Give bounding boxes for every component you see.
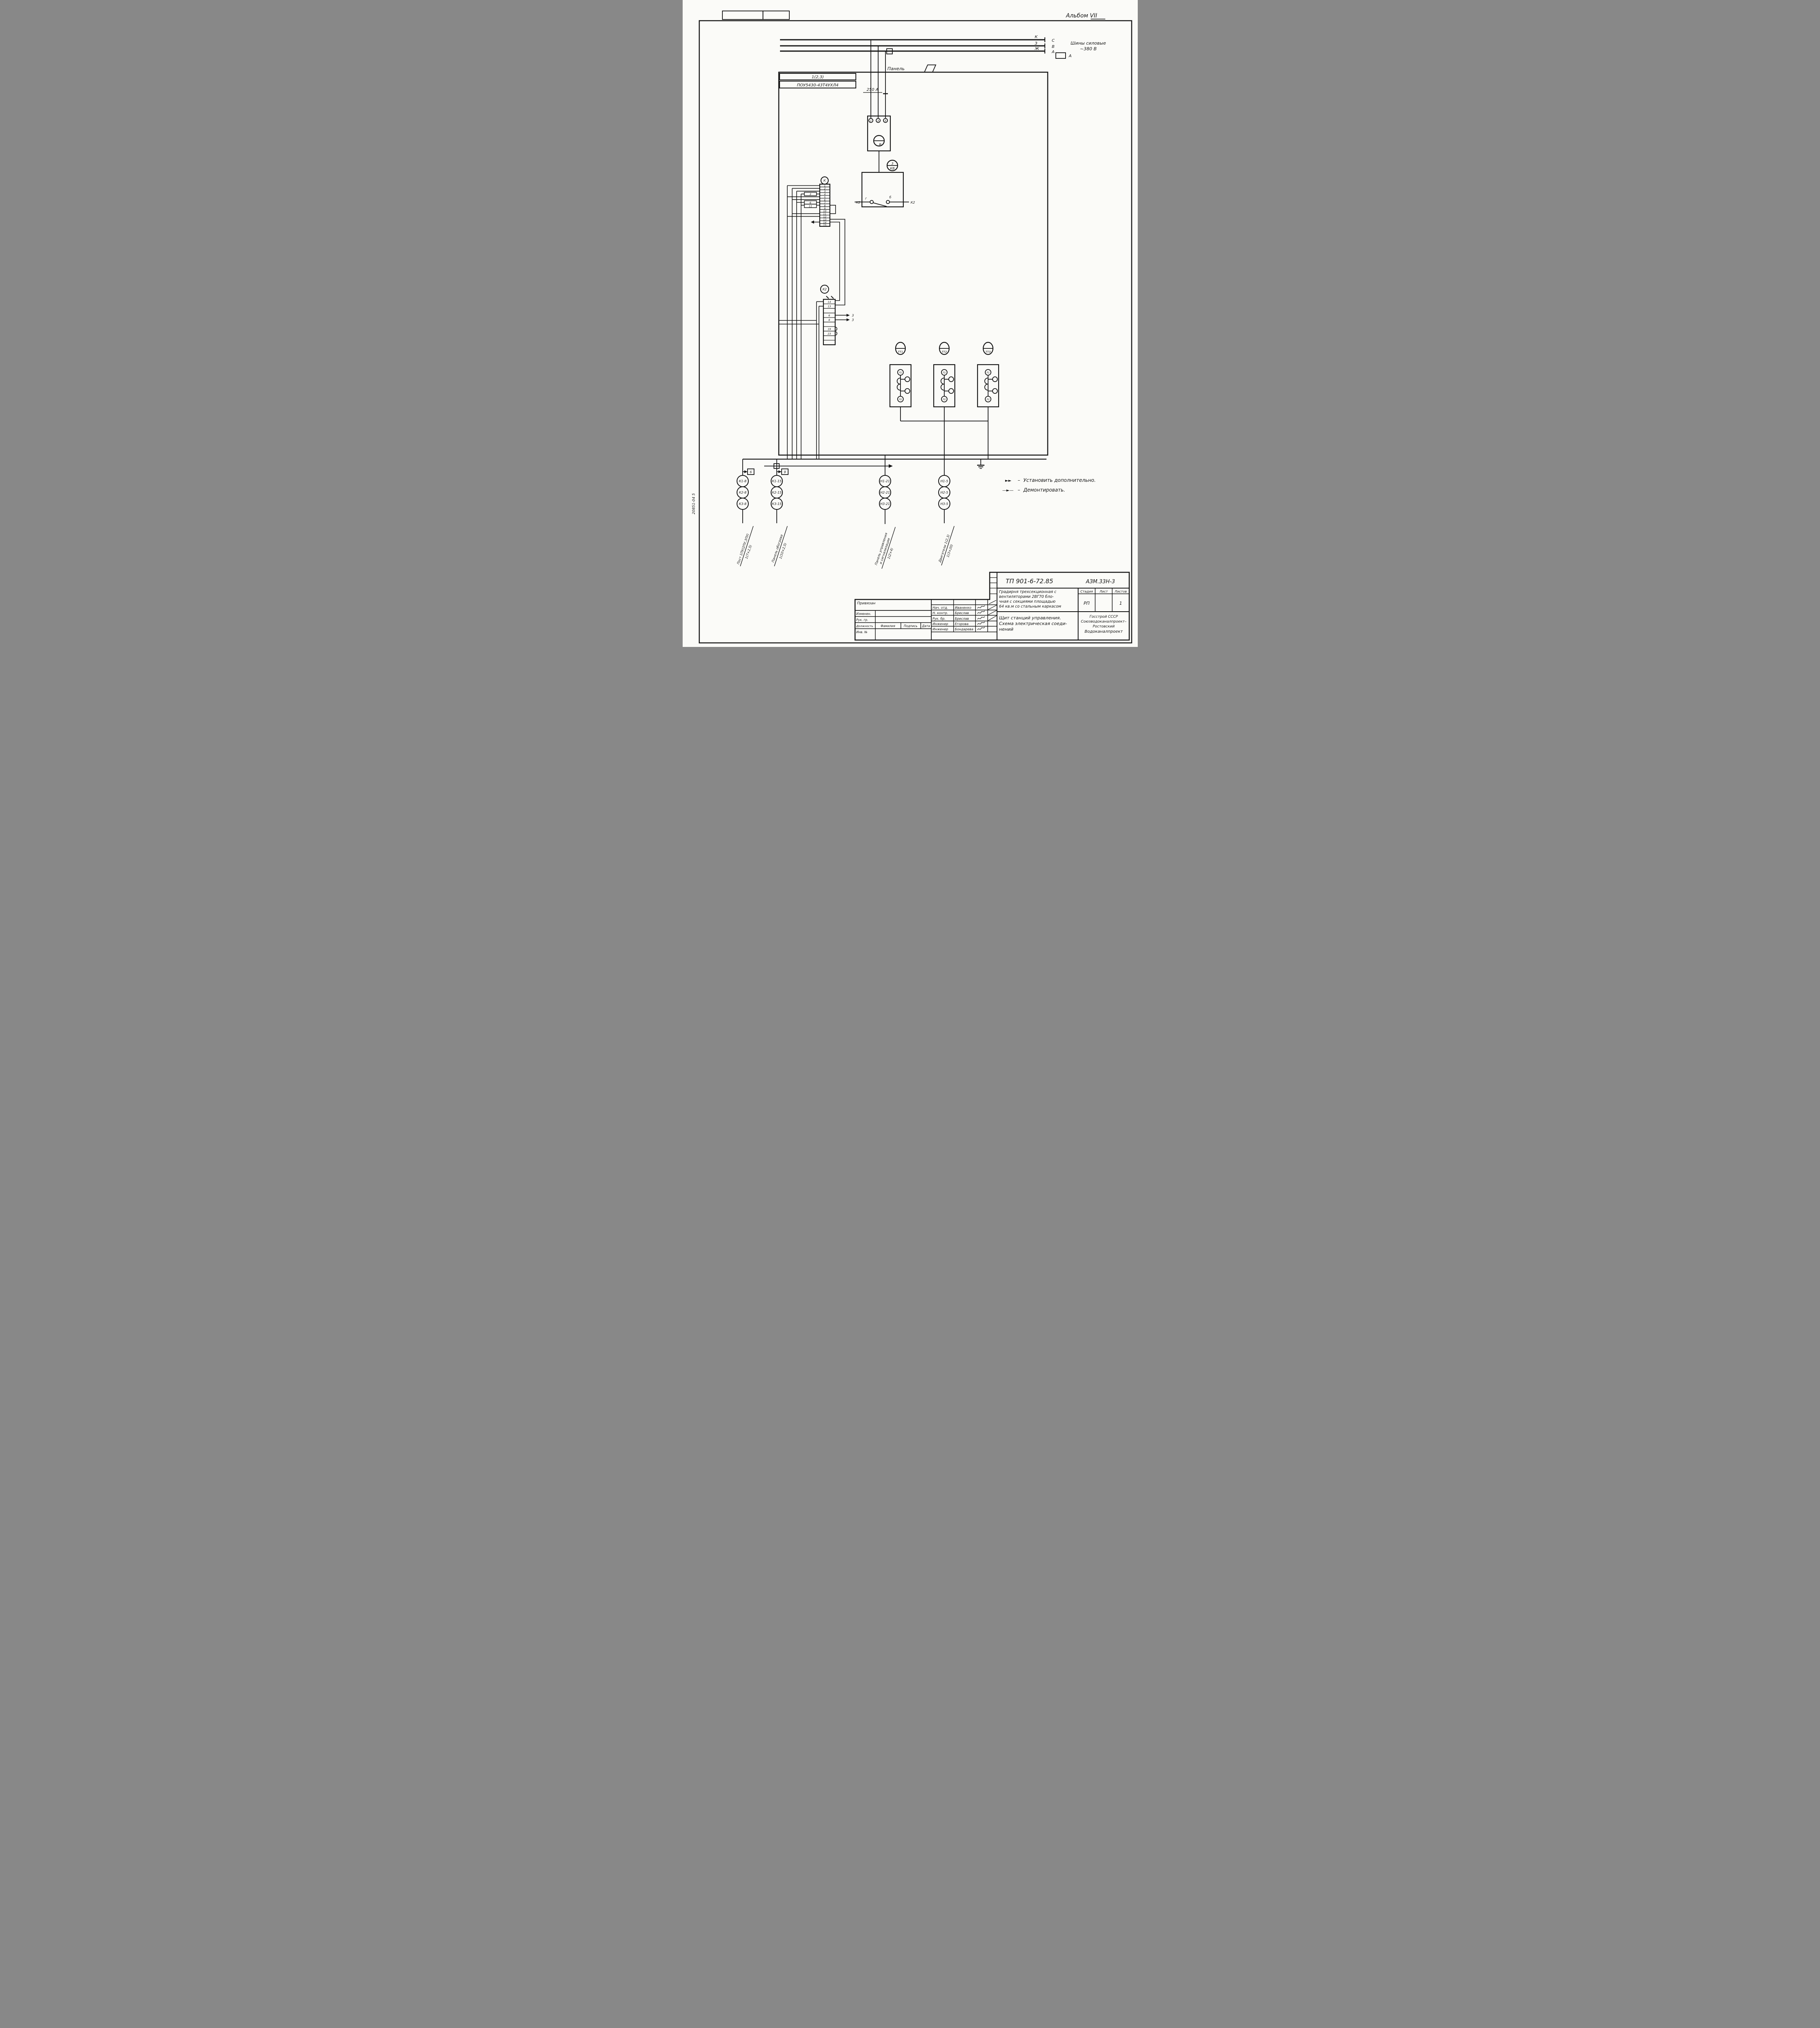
k2-cell: 13 bbox=[827, 305, 831, 308]
k-cell: 14 bbox=[823, 221, 826, 224]
project-line3: чная с секциями площадью bbox=[999, 599, 1055, 604]
k2-wire-label-2: 3 bbox=[852, 318, 854, 322]
project-line4: 64 кв.м со стальным каркасом bbox=[999, 604, 1061, 609]
bus-end-a: А bbox=[1051, 50, 1055, 54]
signer-name-1: Иваненко bbox=[955, 606, 971, 610]
col-d-c1: Н1-5 bbox=[940, 479, 948, 483]
bus-end-c: С bbox=[1052, 39, 1055, 43]
bottom-bus bbox=[743, 459, 1046, 466]
project-line1: Градирня трехсекционная с bbox=[999, 590, 1057, 594]
org-line1: Госстрой СССР bbox=[1089, 615, 1118, 619]
col-c-c1: Н1-21 bbox=[880, 479, 890, 483]
k-cell: 4 bbox=[824, 193, 825, 196]
tt-wiring bbox=[900, 407, 988, 459]
sheet-frame bbox=[699, 11, 1132, 643]
bus-end-b: В bbox=[1052, 45, 1055, 49]
signer-name-5: Бондарева bbox=[955, 627, 973, 631]
bus-phase-zh: Ж bbox=[1034, 47, 1040, 51]
k-cell: 5 bbox=[824, 196, 825, 199]
dest-label-d: Двигатели 1(2,3) 1(3×20) bbox=[937, 525, 959, 567]
header-stage: Стадия bbox=[1080, 590, 1093, 593]
col-d-c2: Н2-5 bbox=[940, 491, 948, 494]
panel-type: ПОУ5430-43Т4УХЛ4 bbox=[797, 83, 838, 88]
tt1-l1: Л1 bbox=[898, 372, 902, 374]
bus-phase-z: З bbox=[1035, 41, 1038, 46]
k-tag-6: 6 bbox=[809, 201, 811, 204]
k-cell: 8 bbox=[824, 204, 825, 207]
k-cell: 3 bbox=[824, 190, 825, 193]
signer-role-5: Инженер bbox=[933, 627, 948, 631]
k2-wire-label-1: 3 bbox=[852, 314, 854, 318]
drawing-title-line1: Щит станций управления. bbox=[999, 615, 1061, 621]
annotation: Привязан bbox=[857, 602, 875, 606]
bus-legend-label: А bbox=[1068, 54, 1072, 58]
signer-name-3: Бреслав bbox=[955, 617, 969, 621]
note1-symbol: ►► bbox=[1005, 479, 1012, 483]
header-sheet: Лист bbox=[1099, 590, 1108, 593]
k2-cell: 19 bbox=[827, 328, 831, 331]
panel-title: Панель bbox=[887, 66, 905, 71]
sheets-value: 1 bbox=[1119, 601, 1122, 606]
sheet-code: АЗМ.33Н-3 bbox=[1085, 579, 1115, 585]
panel-symbol bbox=[924, 65, 936, 72]
album-label: Альбом VII bbox=[1066, 13, 1097, 19]
tag-a: 6 bbox=[750, 470, 752, 474]
drawing-sheet: Альбом VII 20851-04 5 К З Ж С В А Шины с… bbox=[683, 0, 1138, 647]
bus-title-line2: ~380 В bbox=[1080, 46, 1096, 52]
k-block-title: К bbox=[823, 179, 826, 183]
tt1-label: ТТ1 bbox=[898, 350, 903, 354]
kv-contact-g: г bbox=[865, 197, 867, 200]
note1-text: Установить дополнительно. bbox=[1023, 477, 1096, 483]
hdr-date: Дата bbox=[922, 624, 930, 628]
signer-name-2: Бреслав bbox=[955, 611, 969, 615]
hdr-name: Фамилия bbox=[881, 624, 895, 628]
margin-inventory-number: 20851-04 5 bbox=[692, 493, 696, 514]
tt2-l2: Л2 bbox=[942, 399, 946, 401]
kv-contact bbox=[855, 200, 909, 206]
col-d-c3: Н3-5 bbox=[940, 502, 948, 506]
kv-name: КВ bbox=[890, 167, 894, 170]
org-line2: Союзводоканалпроект– bbox=[1081, 620, 1126, 624]
row-label-2: Рук. гр. bbox=[856, 618, 868, 622]
kv-left-label: К2 bbox=[856, 201, 860, 204]
row-label-1: Изменен. bbox=[856, 612, 871, 616]
wire-arrow-1 bbox=[847, 314, 850, 317]
col-a-c3: К3-8 bbox=[739, 502, 746, 506]
tt1-l2: Л2 bbox=[898, 399, 902, 401]
note2-text: Демонтировать. bbox=[1023, 487, 1065, 493]
signer-role-1: Нач. отд. bbox=[933, 606, 948, 610]
org-line3: Ростовский bbox=[1092, 625, 1114, 629]
k-cell: 2 bbox=[824, 187, 825, 190]
tt2-l1: Л1 bbox=[942, 372, 946, 374]
dest-label-b: Панель обогрева 1(10×2,5) bbox=[770, 525, 792, 568]
signer-role-4: Инженер bbox=[933, 622, 948, 626]
org-line4: Водоканалпроект bbox=[1084, 629, 1123, 634]
hdr-sign: Подпись bbox=[904, 624, 918, 628]
wire-arrow-2 bbox=[847, 318, 850, 321]
tag-b: 9 bbox=[784, 470, 786, 474]
stage-value: РП bbox=[1083, 601, 1089, 606]
hdr-role: Должность bbox=[856, 625, 873, 628]
dest-label-c: Панель управления и сигнализации 1(2×4) bbox=[874, 524, 900, 570]
k2-block-title: К2 bbox=[822, 288, 826, 291]
power-buses bbox=[780, 37, 1045, 54]
bus-phase-k: К bbox=[1035, 35, 1038, 39]
fuse-rating: 250 А bbox=[866, 88, 878, 92]
bus-title-line1: Шины силовые bbox=[1070, 41, 1106, 46]
bus-legend-box bbox=[1056, 53, 1066, 58]
k-cell: 1 bbox=[824, 185, 825, 187]
kv-contact-b: б bbox=[889, 195, 891, 199]
col-c-c3: Н3-21 bbox=[880, 502, 890, 506]
tag-arrow-b bbox=[778, 470, 782, 473]
note2-dash: – bbox=[1018, 487, 1020, 493]
signer-role-3: Рук. бр. bbox=[933, 617, 945, 621]
k-tag-11: 11 bbox=[808, 204, 812, 208]
col-c-c2: Н2-21 bbox=[880, 491, 890, 494]
row-label-3: Инв. № bbox=[856, 630, 868, 634]
panel-ref: 1(2,3) bbox=[811, 75, 823, 79]
note2-symbol: —►— bbox=[1002, 488, 1014, 493]
k-left-wiring bbox=[787, 186, 820, 460]
drawing-title-line2: Схема электрическая соеди- bbox=[999, 621, 1067, 626]
svg-text:1(3×20): 1(3×20) bbox=[946, 544, 954, 558]
project-line2: вентиляторами 2ВГ70 бло- bbox=[999, 595, 1054, 599]
voltmeter-label: В bbox=[879, 143, 881, 147]
demount-arrow-bottom bbox=[889, 464, 893, 468]
kv-num: 3 bbox=[891, 162, 893, 165]
dest-label-a: Пост 1ПУ(2ПУ,3ПУ) 1(7×2,5) bbox=[736, 525, 758, 568]
note1-dash: – bbox=[1018, 477, 1020, 483]
tag-arrow-a bbox=[744, 470, 748, 473]
breaker-terminal-5: 5 bbox=[884, 119, 886, 122]
tt3-l2: Л2 bbox=[986, 399, 990, 401]
tt2-label: ТТ2 bbox=[941, 350, 947, 354]
tt3-l1: Л1 bbox=[986, 372, 990, 374]
signer-name-4: Егорова bbox=[955, 622, 969, 626]
doc-number: ТП 901-6-72.85 bbox=[1006, 578, 1053, 585]
k2-cell: 6 bbox=[828, 314, 830, 317]
k-cell: 11 bbox=[823, 213, 826, 216]
breaker-terminal-3: 3 bbox=[877, 119, 879, 122]
col-b-c2: К2-15 bbox=[772, 491, 782, 494]
col-b-c1: К1-15 bbox=[772, 479, 782, 483]
k-cell: 15 bbox=[823, 224, 826, 227]
signer-role-2: Н. контр. bbox=[933, 611, 948, 615]
k2-wiring bbox=[779, 302, 847, 459]
demount-arrow-k14 bbox=[811, 221, 814, 224]
ground-symbol bbox=[977, 459, 984, 468]
drawing-title-line3: нений bbox=[999, 627, 1013, 632]
breaker-terminal-1: 1 bbox=[870, 119, 871, 122]
col-b-c3: К3-15 bbox=[772, 502, 782, 506]
k2-cell: 23 bbox=[827, 332, 831, 335]
tt3-label: ТТ3 bbox=[985, 350, 991, 354]
k2-cell: 8 bbox=[828, 318, 830, 322]
header-sheets: Листов bbox=[1114, 590, 1127, 593]
col-a-c1: К1-8 bbox=[739, 479, 746, 483]
kv-right-label: К2 bbox=[911, 201, 915, 204]
k2-cell: 14 bbox=[827, 300, 831, 303]
k-tag-3: 3 bbox=[809, 193, 811, 196]
col-a-c2: К2-8 bbox=[739, 491, 746, 494]
